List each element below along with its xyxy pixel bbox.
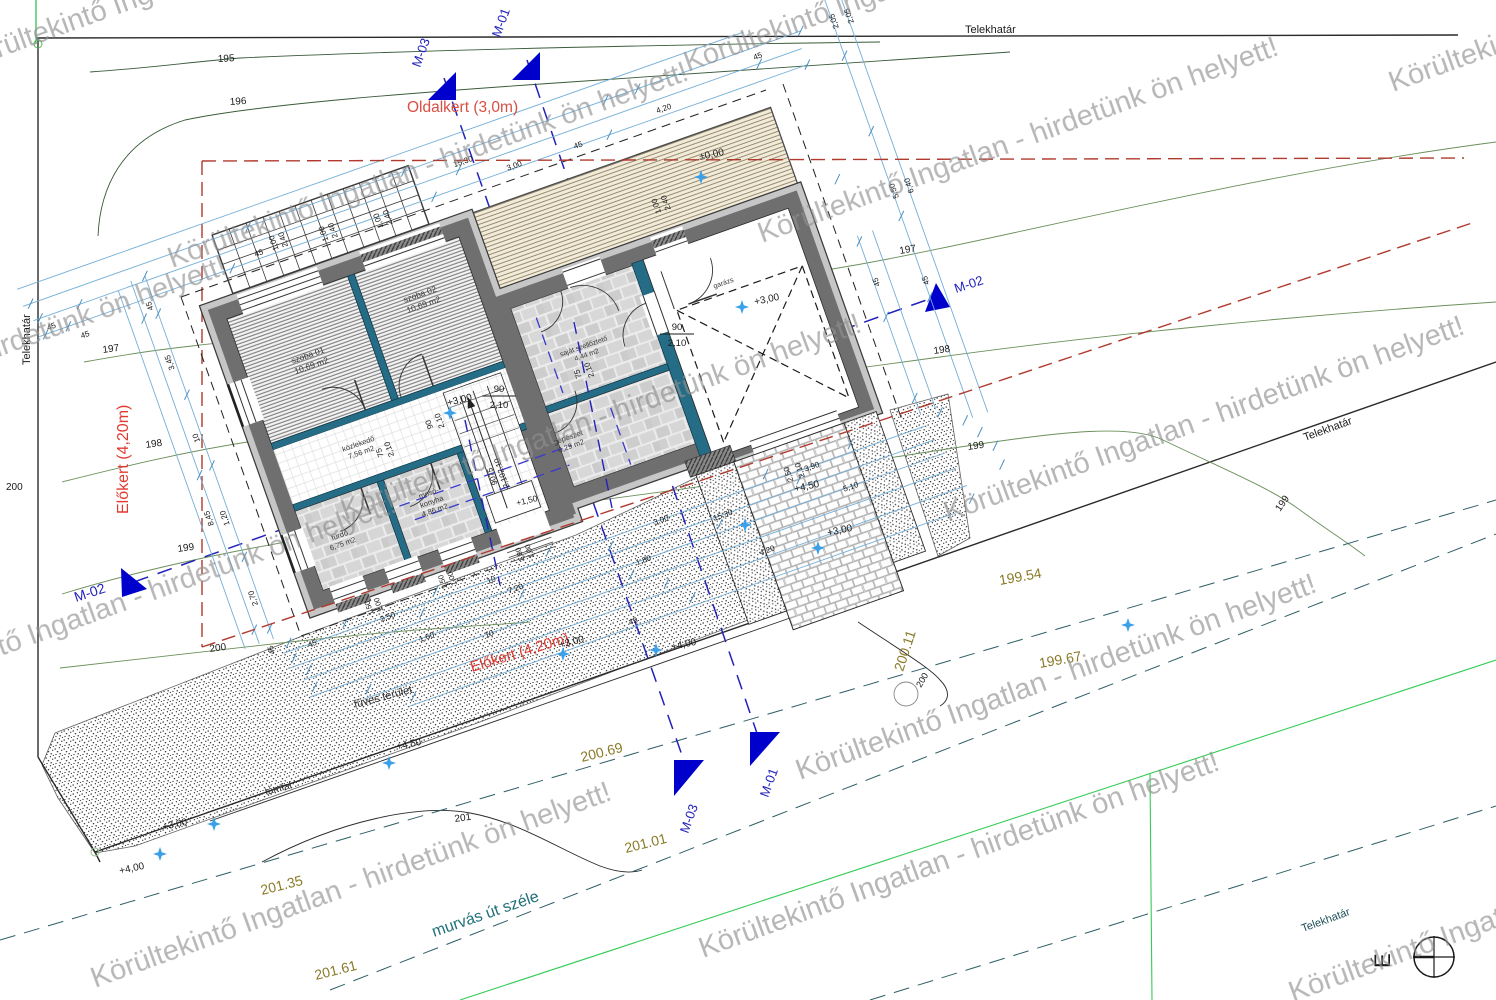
svg-text:Oldalkert (3,0m): Oldalkert (3,0m) (407, 99, 518, 116)
svg-text:195: 195 (218, 53, 236, 65)
svg-text:2,10: 2,10 (490, 400, 509, 411)
svg-text:90: 90 (494, 384, 505, 395)
svg-text:Előkert (4,20m): Előkert (4,20m) (115, 405, 132, 514)
svg-text:90: 90 (672, 322, 683, 333)
svg-text:Telekhatár: Telekhatár (965, 24, 1016, 36)
svg-text:196: 196 (229, 96, 247, 108)
svg-text:200: 200 (6, 482, 23, 493)
svg-text:2,10: 2,10 (668, 338, 687, 349)
